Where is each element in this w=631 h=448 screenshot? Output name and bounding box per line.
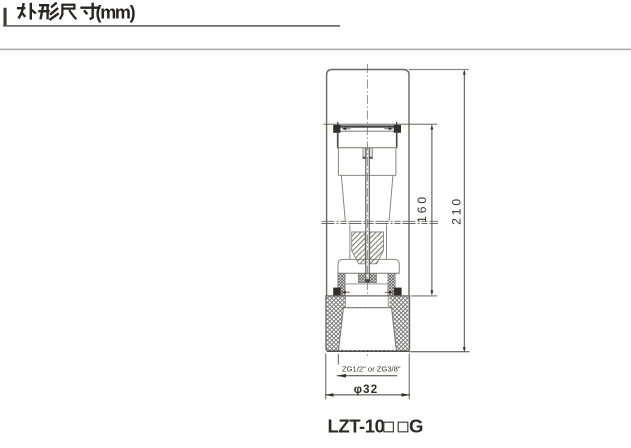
svg-text:160: 160 [415,194,429,223]
svg-text:(mm): (mm) [96,3,136,23]
svg-text:G: G [409,415,423,436]
svg-text:ZG1/2" or ZG3/8": ZG1/2" or ZG3/8" [342,365,401,374]
svg-text:210: 210 [449,196,463,225]
svg-text:LZT-10: LZT-10 [328,415,385,436]
svg-text:φ32: φ32 [354,384,379,396]
